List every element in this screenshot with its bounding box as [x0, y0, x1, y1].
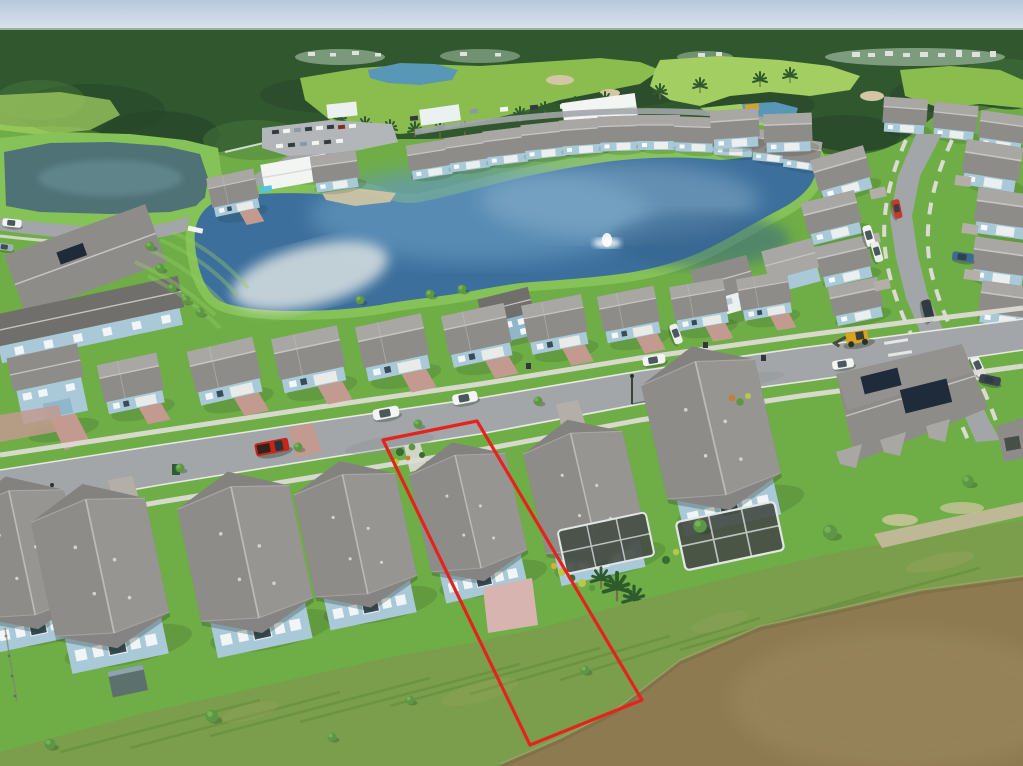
car-gray [0, 242, 15, 254]
van-blue [951, 251, 976, 266]
house [521, 293, 601, 373]
house [187, 335, 278, 426]
sand-bunker [860, 91, 884, 101]
house [271, 324, 361, 414]
trash-bin [703, 342, 708, 348]
west-houses [0, 204, 188, 458]
van-dark [978, 373, 1003, 389]
sand-bunker [546, 75, 574, 85]
house [97, 351, 178, 432]
house [881, 97, 934, 139]
trash-bin [526, 363, 531, 369]
aerial-photo [0, 0, 1023, 766]
dirt-patch [882, 514, 918, 526]
house [996, 418, 1023, 462]
house [355, 312, 445, 402]
screened-porch [1004, 436, 1021, 451]
house [597, 284, 673, 360]
dirt-patch [940, 502, 984, 514]
covered-patio [107, 665, 148, 698]
trash-bin [761, 355, 766, 361]
house [763, 112, 819, 157]
